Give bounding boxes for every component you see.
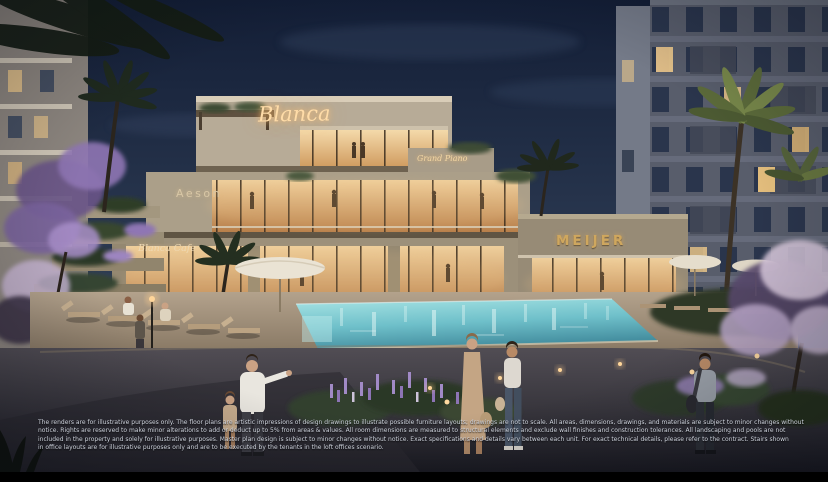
vignette <box>0 0 828 482</box>
disclaimer-line-4: in office layouts are for illustrative p… <box>38 444 798 452</box>
disclaimer-line-2: notice. Rights are reserved to make mino… <box>38 427 798 435</box>
architectural-render: Blanca Grand Piano Aeson Blanca Cafe MEI… <box>0 0 828 482</box>
blanca-neon-sign: Blanca <box>258 101 331 126</box>
disclaimer-line-3: included in the property and solely for … <box>38 436 798 444</box>
scene-artwork <box>0 0 828 482</box>
disclaimer-line-1: The renders are for illustrative purpose… <box>38 419 798 427</box>
blanca-cafe-sign: Blanca Cafe <box>138 243 196 254</box>
grand-piano-sign: Grand Piano <box>417 154 467 163</box>
aeson-sign: Aeson <box>176 187 222 200</box>
letterbox-bar <box>0 472 828 482</box>
disclaimer-text: The renders are for illustrative purpose… <box>38 419 798 452</box>
meijer-sign: MEIJER <box>556 233 626 249</box>
